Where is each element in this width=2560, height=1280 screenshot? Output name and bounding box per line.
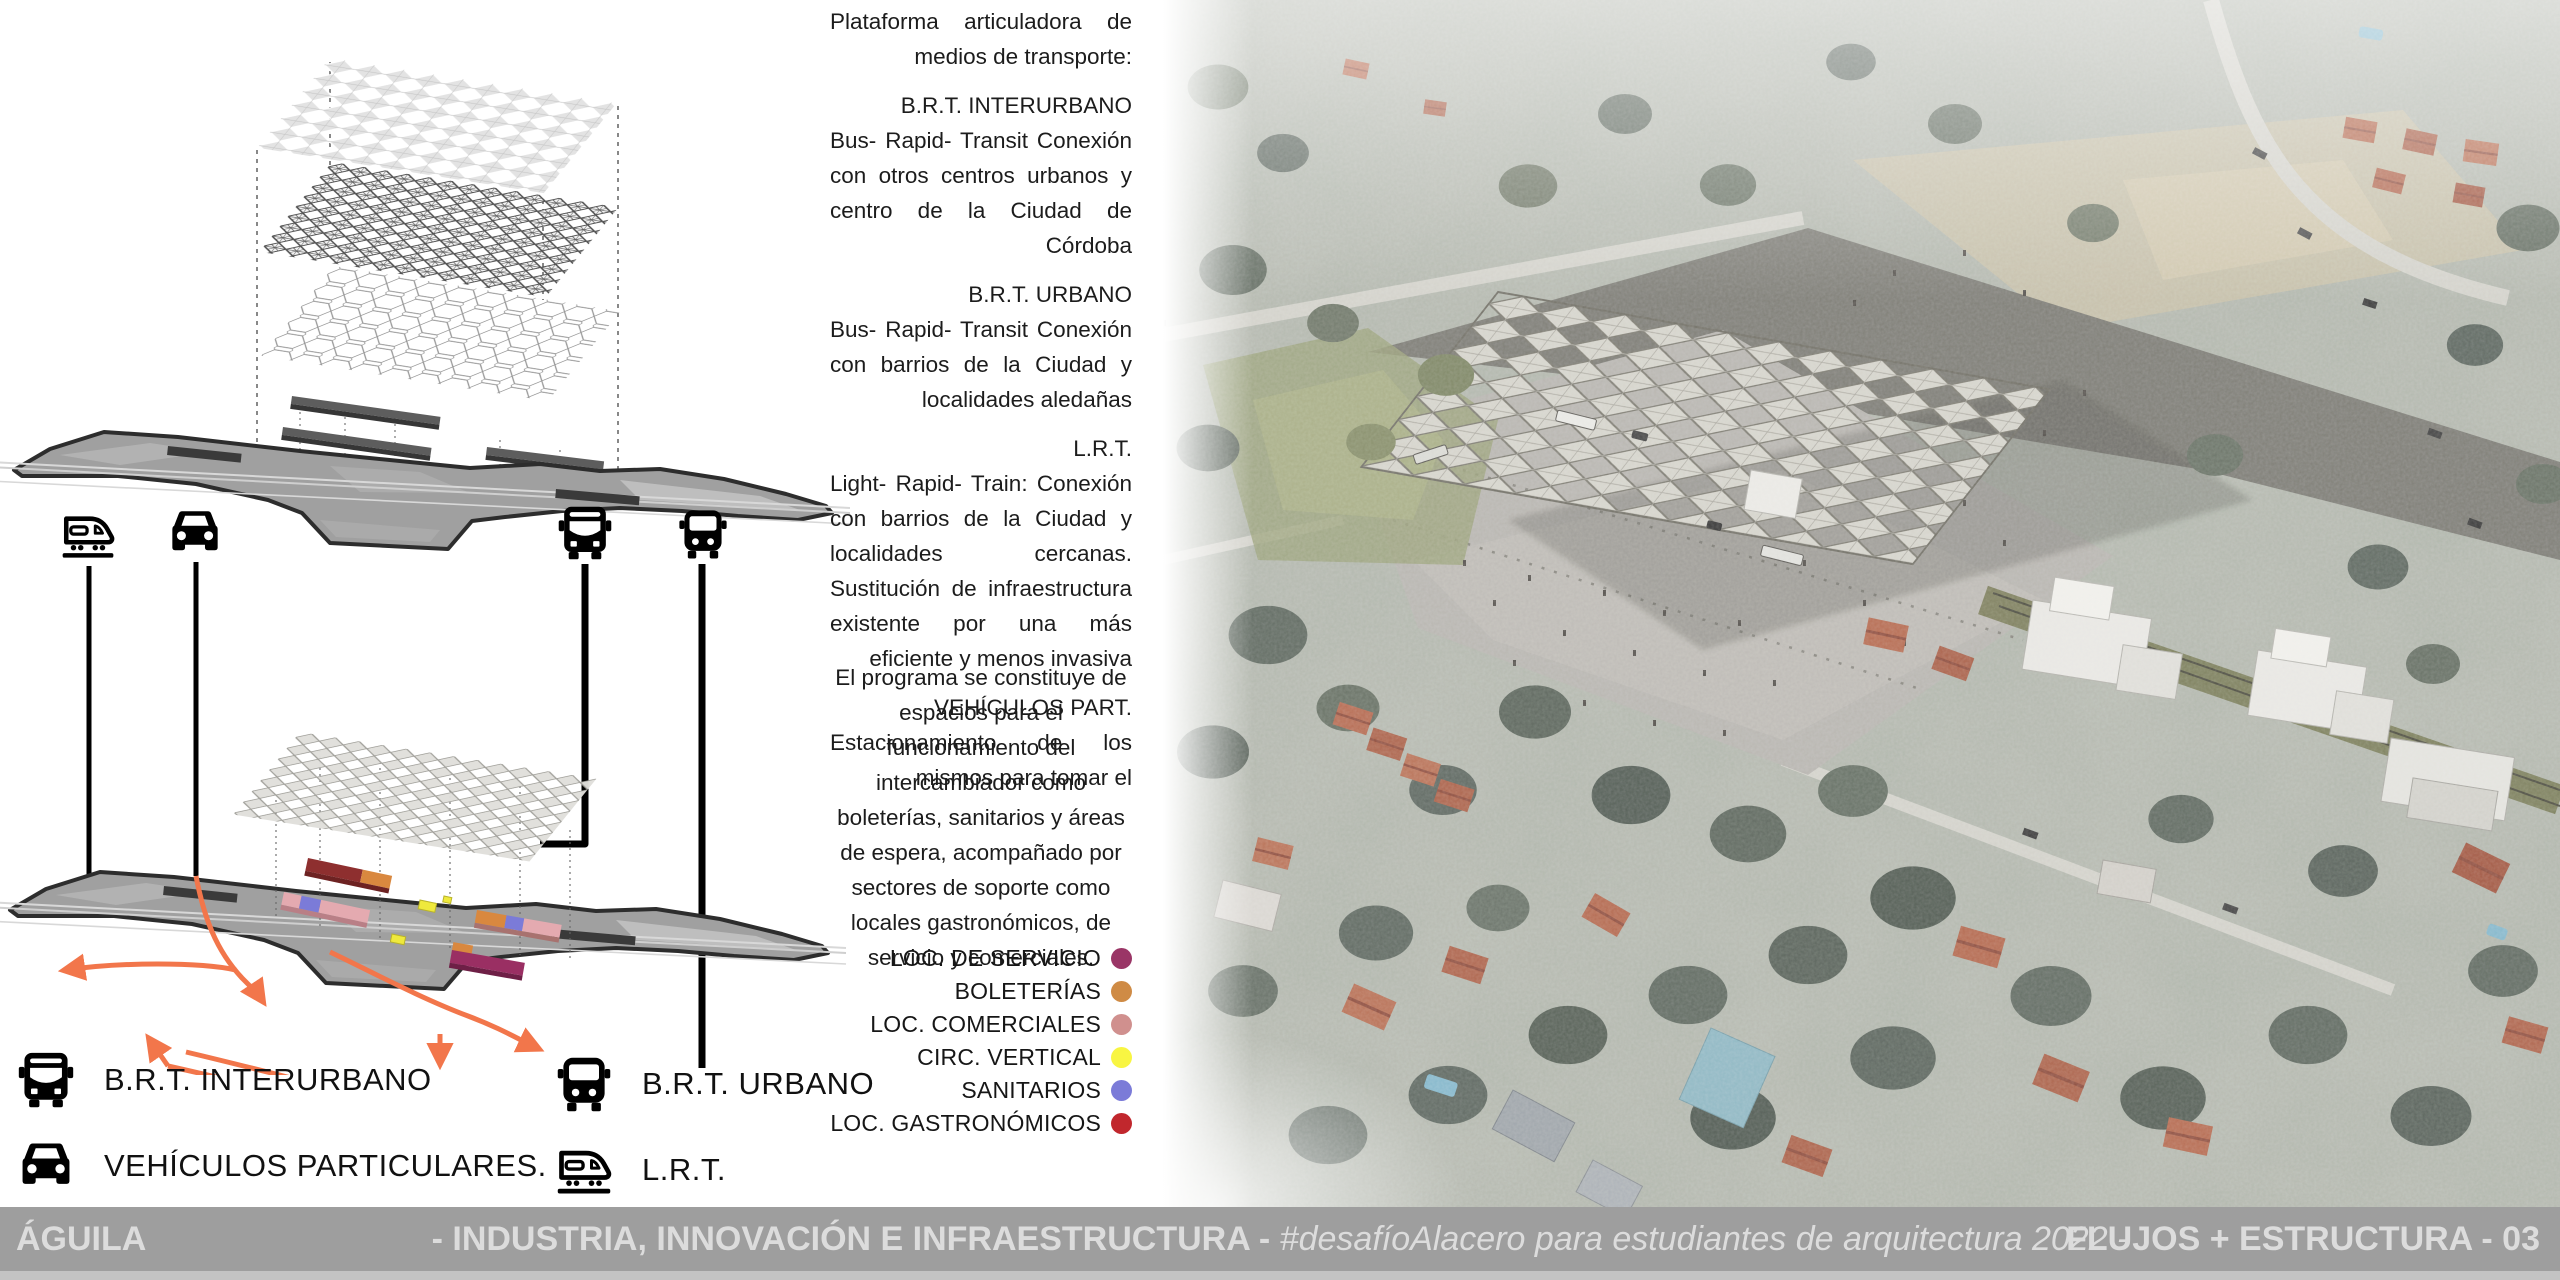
section-body: Bus- Rapid- Transit Conexión con otros c…	[830, 123, 1132, 263]
legend-label: SANITARIOS	[961, 1077, 1101, 1104]
legend-item: CIRC. VERTICAL	[830, 1041, 1132, 1074]
legend-item: LOC. COMERCIALES	[830, 1008, 1132, 1041]
lrt-icon	[63, 519, 114, 558]
legend-dot	[1111, 981, 1132, 1002]
coach-bus-icon	[14, 1050, 78, 1110]
footer-title-italic: #desafíoAlacero para estudiantes de arqu…	[1280, 1220, 2129, 1258]
transport-label: VEHÍCULOS PARTICULARES.	[104, 1148, 547, 1184]
legend-dot	[1111, 1014, 1132, 1035]
section-heading: B.R.T. INTERURBANO	[830, 88, 1132, 123]
legend-dot	[1111, 1047, 1132, 1068]
legend-item: SANITARIOS	[830, 1074, 1132, 1107]
city-bus-icon	[552, 1054, 616, 1114]
legend-label: BOLETERÍAS	[955, 978, 1101, 1005]
legend-label: LOC. COMERCIALES	[870, 1011, 1101, 1038]
legend-dot	[1111, 948, 1132, 969]
transport-legend-item: B.R.T. INTERURBANO	[14, 1050, 432, 1110]
transport-legend-item: B.R.T. URBANO	[552, 1054, 874, 1114]
legend-dot	[1111, 1113, 1132, 1134]
floating-canopy	[233, 732, 596, 861]
legend-label: LOC. GASTRONÓMICOS	[830, 1110, 1101, 1137]
presentation-board: Plataforma articuladora de medios de tra…	[0, 0, 2560, 1280]
car-icon	[172, 511, 217, 550]
aerial-render	[1163, 0, 2560, 1207]
transport-label: L.R.T.	[642, 1152, 726, 1188]
legend-item: LOC. GASTRONÓMICOS	[830, 1107, 1132, 1140]
footer-sheet-title: FLUJOS + ESTRUCTURA - 03	[2066, 1220, 2540, 1259]
transport-label: B.R.T. INTERURBANO	[104, 1062, 432, 1098]
car-icon	[14, 1136, 78, 1196]
footer-title-bold: - INDUSTRIA, INNOVACIÓN E INFRAESTRUCTUR…	[432, 1220, 1280, 1258]
flow-site-plan	[0, 872, 846, 989]
footer-bar: ÁGUILA - INDUSTRIA, INNOVACIÓN E INFRAES…	[0, 1207, 2560, 1271]
footer-strip	[0, 1271, 2560, 1280]
legend-dot	[1111, 1080, 1132, 1101]
transport-legend-item: VEHÍCULOS PARTICULARES.	[14, 1136, 547, 1196]
section-body: Light- Rapid- Train: Conexión con barrio…	[830, 466, 1132, 676]
legend-label: LOC. DE SERVICIO	[890, 945, 1101, 972]
intro-text: Plataforma articuladora de medios de tra…	[830, 4, 1132, 74]
legend-item: LOC. DE SERVICIO	[830, 942, 1132, 975]
section-body: Bus- Rapid- Transit Conexión con barrios…	[830, 312, 1132, 417]
program-paragraph: El programa se constituye de espacios pa…	[830, 660, 1132, 975]
legend-label: CIRC. VERTICAL	[917, 1044, 1101, 1071]
program-legend: LOC. DE SERVICIO BOLETERÍAS LOC. COMERCI…	[830, 942, 1132, 1140]
transport-label: B.R.T. URBANO	[642, 1066, 874, 1102]
lrt-icon	[552, 1140, 616, 1200]
section-heading: B.R.T. URBANO	[830, 277, 1132, 312]
section-heading: L.R.T.	[830, 431, 1132, 466]
city-bus-icon	[679, 510, 726, 558]
coach-bus-icon	[559, 507, 612, 560]
exploded-axonometric-diagram	[0, 0, 850, 560]
legend-item: BOLETERÍAS	[830, 975, 1132, 1008]
flow-diagram	[0, 500, 880, 1075]
transport-legend-item: L.R.T.	[552, 1140, 726, 1200]
